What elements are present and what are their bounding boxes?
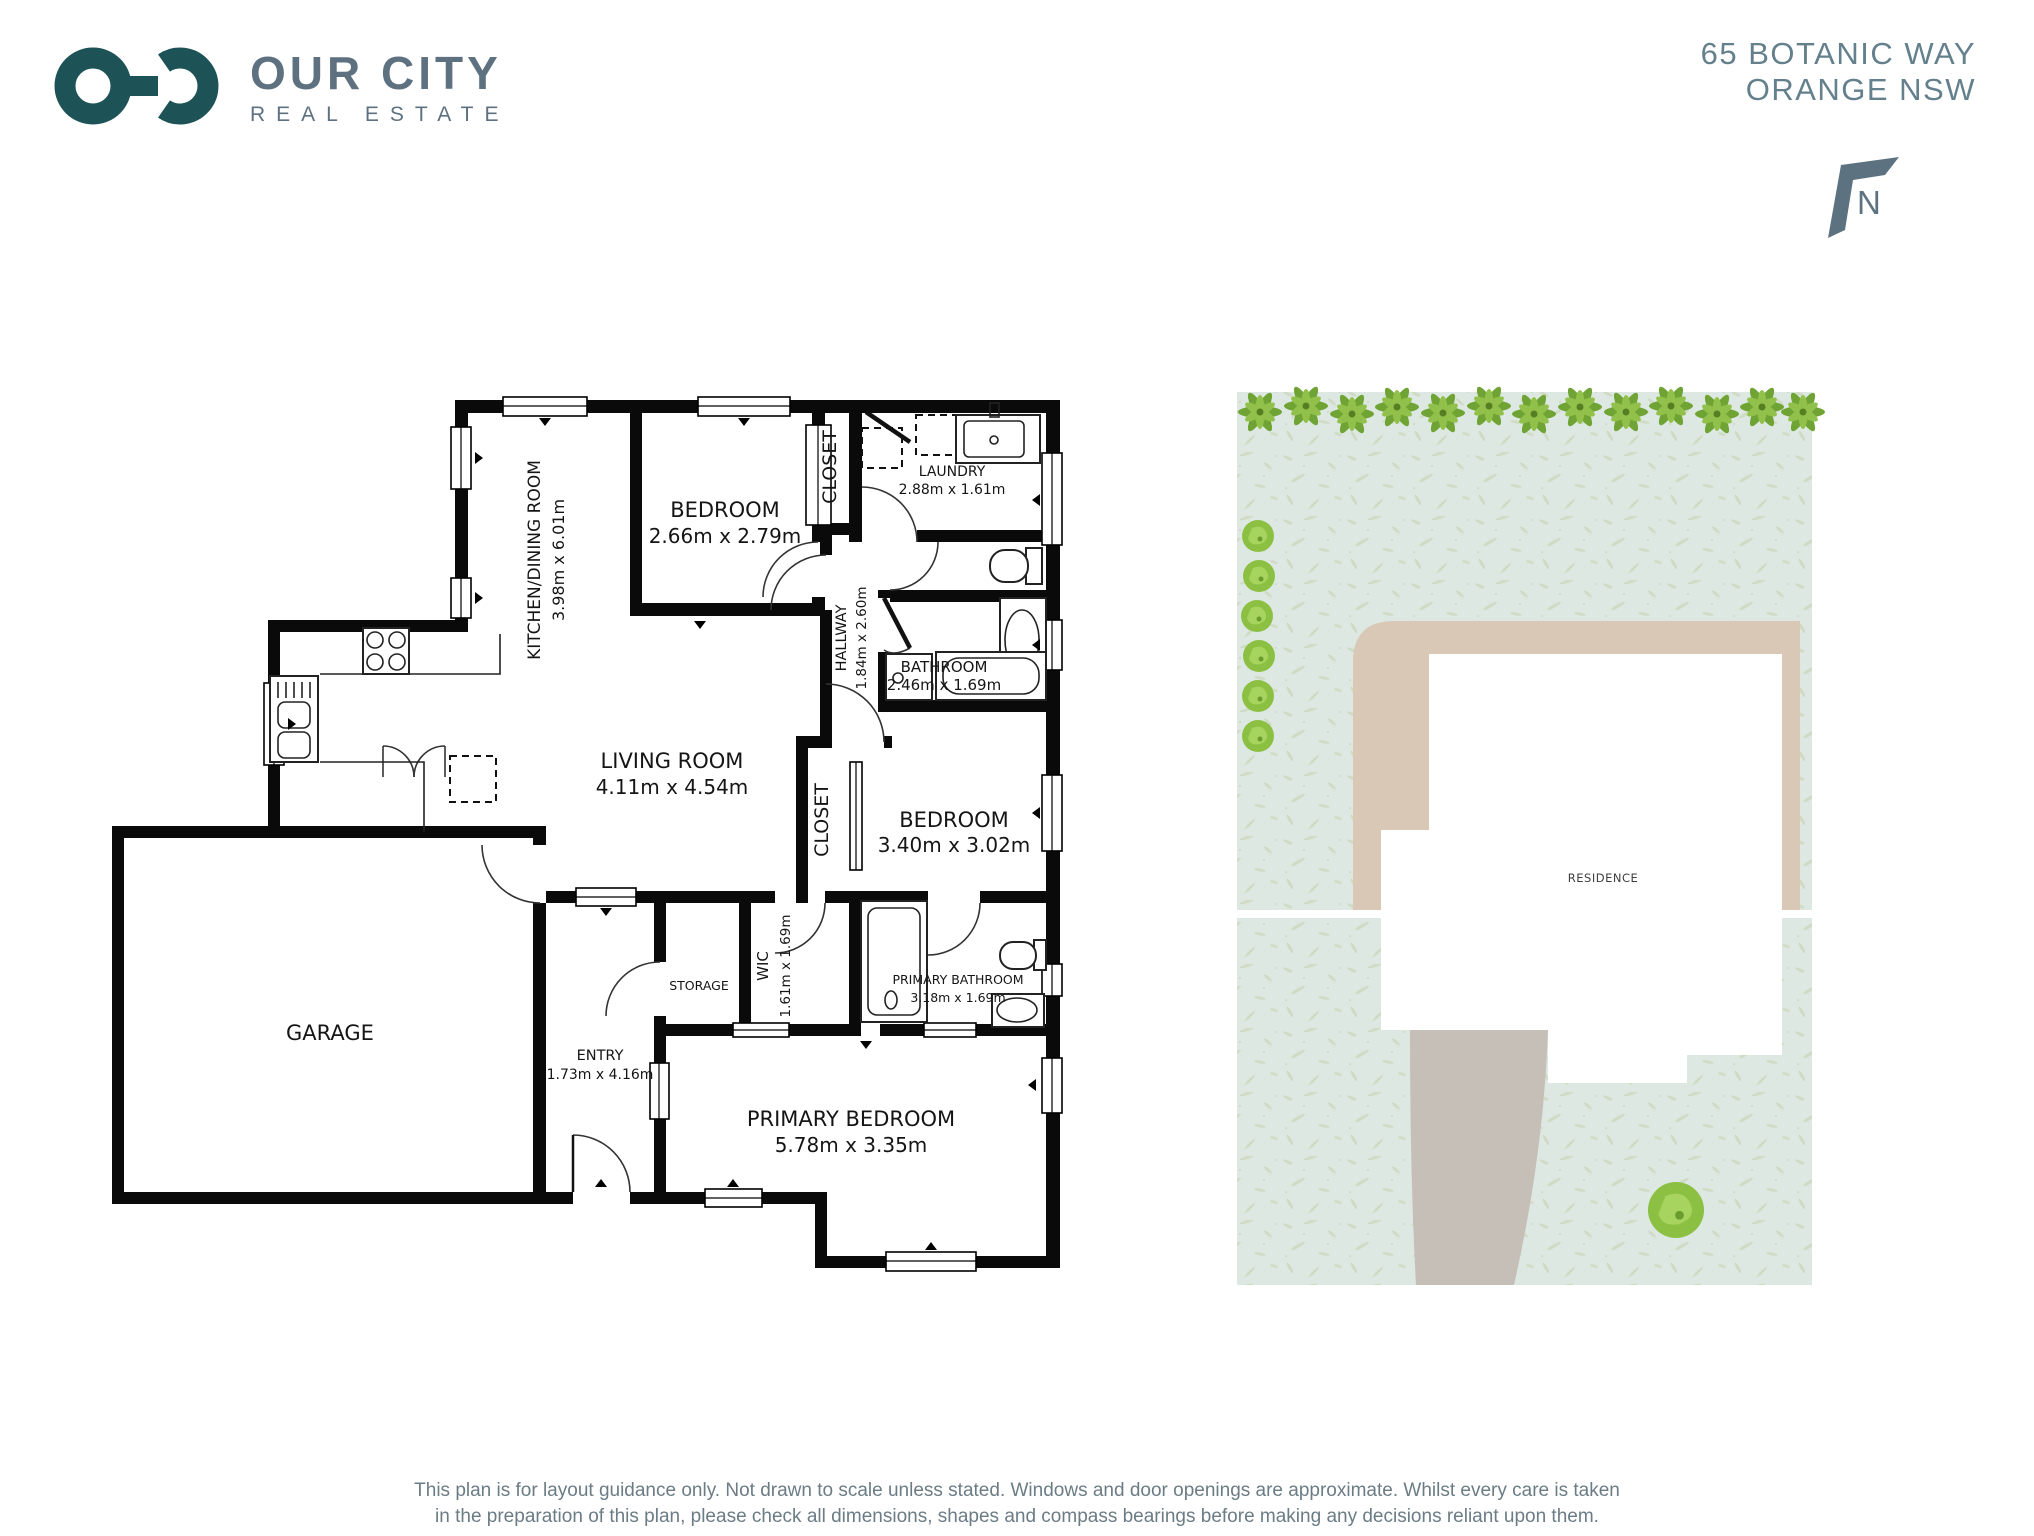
- site-plan: RESIDENCE: [1230, 378, 1830, 1293]
- garage-label: GARAGE: [286, 1021, 374, 1045]
- kitchen-dims: 3.98m x 6.01m: [549, 499, 568, 621]
- residence-footprint: [1381, 654, 1782, 1083]
- bedroom1-dims: 2.66m x 2.79m: [649, 524, 802, 548]
- living-dims: 4.11m x 4.54m: [596, 775, 749, 799]
- storage-label: STORAGE: [669, 978, 729, 993]
- laundry-label: LAUNDRY: [919, 464, 986, 480]
- north-label: N: [1857, 184, 1881, 221]
- bathroom-dims: 2.46m x 1.69m: [887, 676, 1001, 694]
- wic-label: WIC: [754, 951, 772, 981]
- floor-plan: KITCHEN/DINING ROOM 3.98m x 6.01m BEDROO…: [100, 390, 1090, 1285]
- disclaimer: This plan is for layout guidance only. N…: [0, 1478, 2034, 1530]
- door-leaves: [866, 412, 910, 648]
- bedroom2-dims: 3.40m x 3.02m: [878, 833, 1031, 857]
- wc-toilet-icon: [990, 548, 1042, 584]
- living-label: LIVING ROOM: [601, 749, 744, 773]
- primary-bathroom-dims: 3.18m x 1.69m: [910, 990, 1005, 1005]
- our-city-logo-icon: [52, 38, 222, 133]
- residence-label: RESIDENCE: [1568, 871, 1638, 885]
- bedroom1-label: BEDROOM: [670, 498, 780, 522]
- kitchen-fixtures: [270, 628, 500, 832]
- bedroom2-label: BEDROOM: [899, 808, 1009, 832]
- primary-bathroom-fixtures: [861, 901, 1046, 1027]
- primary-bedroom-dims: 5.78m x 3.35m: [775, 1133, 928, 1157]
- primary-bedroom-label: PRIMARY BEDROOM: [747, 1107, 955, 1131]
- dryer-icon: [916, 415, 956, 455]
- disclaimer-line1: This plan is for layout guidance only. N…: [0, 1478, 2034, 1504]
- laundry-dims: 2.88m x 1.61m: [899, 482, 1006, 498]
- primary-toilet-icon: [1000, 940, 1046, 970]
- address-line2: ORANGE NSW: [1701, 72, 1976, 108]
- brand-text: OUR CITY REAL ESTATE: [250, 48, 509, 130]
- entry-dims: 1.73m x 4.16m: [547, 1067, 654, 1083]
- disclaimer-line2: in the preparation of this plan, please …: [0, 1504, 2034, 1530]
- brand-subtitle: REAL ESTATE: [250, 100, 509, 130]
- entry-label: ENTRY: [577, 1048, 624, 1064]
- brand-name: OUR CITY: [250, 48, 509, 98]
- closet2-label: CLOSET: [811, 783, 833, 857]
- kitchen-label: KITCHEN/DINING ROOM: [525, 460, 545, 660]
- north-arrow-icon: N: [1815, 150, 1925, 255]
- hallway-dims: 1.84m x 2.60m: [854, 587, 870, 690]
- closet1-label: CLOSET: [819, 430, 841, 504]
- primary-bathroom-label: PRIMARY BATHROOM: [892, 972, 1023, 987]
- dishwasher-icon: [450, 756, 496, 802]
- wic-dims: 1.61m x 1.69m: [778, 915, 794, 1018]
- hallway-label: HALLWAY: [834, 604, 850, 671]
- address-line1: 65 BOTANIC WAY: [1701, 36, 1976, 72]
- property-address: 65 BOTANIC WAY ORANGE NSW: [1701, 36, 1976, 108]
- bathroom-label: BATHROOM: [901, 658, 988, 676]
- kitchen-sink-icon: [270, 676, 318, 762]
- floorplan-page: OUR CITY REAL ESTATE 65 BOTANIC WAY ORAN…: [0, 0, 2034, 1536]
- backyard-tree: [1648, 1182, 1704, 1238]
